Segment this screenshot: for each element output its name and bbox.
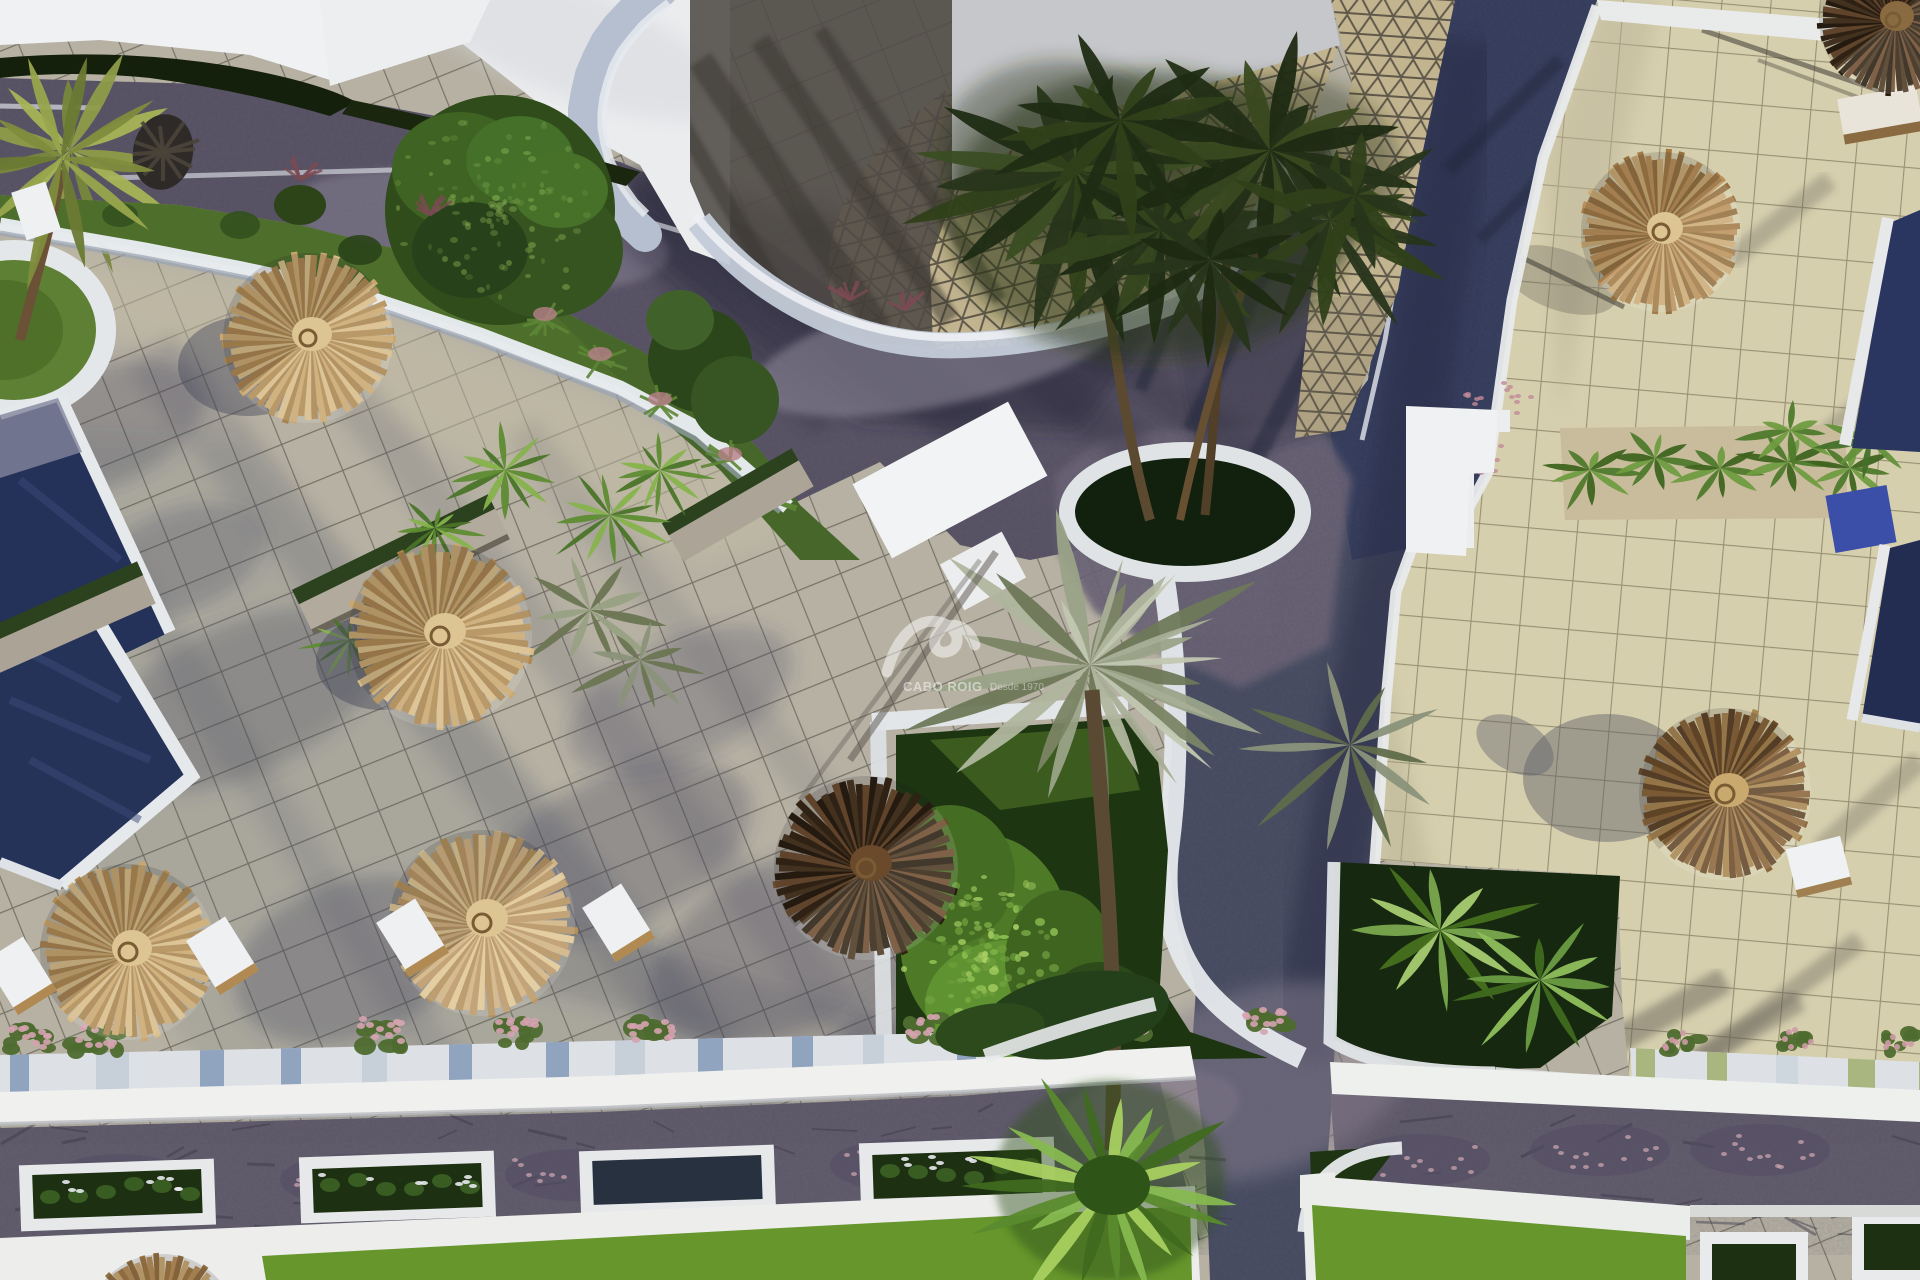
svg-text:CABO ROIG: CABO ROIG xyxy=(903,679,983,694)
svg-text:Desde 1970: Desde 1970 xyxy=(990,682,1044,693)
